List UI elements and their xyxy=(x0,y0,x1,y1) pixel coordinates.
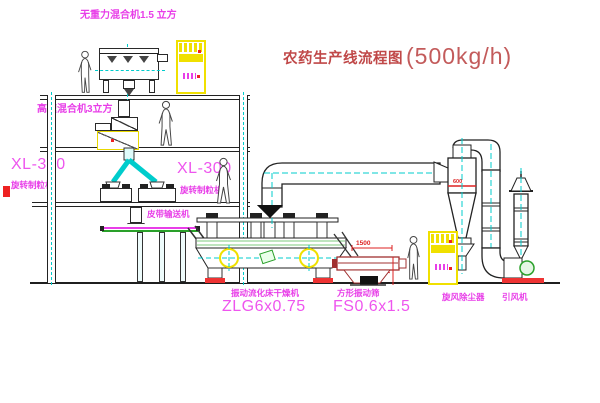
worker-figure xyxy=(74,50,96,96)
mixer-feed-pipe xyxy=(118,100,130,117)
label-sieve-model: FS0.6x1.5 xyxy=(333,299,410,315)
label-sieve: 方形振动筛 xyxy=(337,289,380,298)
gravity-free-mixer xyxy=(99,46,171,96)
label-granulator-left-model: XL-300 xyxy=(11,157,66,173)
worker-figure xyxy=(403,232,424,286)
conveyor-support xyxy=(137,232,143,282)
worker-figure xyxy=(212,157,235,207)
fan-motor xyxy=(520,261,534,275)
control-cabinet-top xyxy=(176,40,206,94)
exhaust-stack xyxy=(514,194,528,246)
y-split-pipe xyxy=(100,148,170,190)
high-speed-mixer xyxy=(95,99,147,152)
title-text: 农药生产线流程图 xyxy=(283,47,403,68)
label-belt-conveyor: 皮带输送机 xyxy=(147,210,190,219)
mixer-side-port xyxy=(157,54,168,62)
label-cyclone: 旋风除尘器 xyxy=(442,293,485,302)
edge-equipment-marker xyxy=(3,186,10,197)
label-dryer-model: ZLG6x0.75 xyxy=(222,299,306,315)
worker-figure xyxy=(155,100,177,149)
label-dryer: 振动流化床干燥机 xyxy=(231,289,299,298)
page-title: 农药生产线流程图 (500kg/h) xyxy=(283,46,512,68)
label-fan: 引风机 xyxy=(502,293,528,302)
cyclone-inlet xyxy=(434,162,448,182)
label-gravity-mixer: 无重力混合机1.5 立方 xyxy=(80,11,177,21)
dimension-cyclone: 600 xyxy=(453,180,462,186)
title-capacity: (500kg/h) xyxy=(406,46,512,68)
fan-base xyxy=(502,278,544,283)
column-left-centerline xyxy=(51,92,52,285)
discharge-pipe xyxy=(130,207,142,223)
process-flow-diagram: 农药生产线流程图 (500kg/h) 无重力混合机1.5 立方 高速混合机3立方… xyxy=(0,0,600,403)
control-cabinet-bottom xyxy=(428,231,458,285)
conveyor-support xyxy=(159,232,165,282)
